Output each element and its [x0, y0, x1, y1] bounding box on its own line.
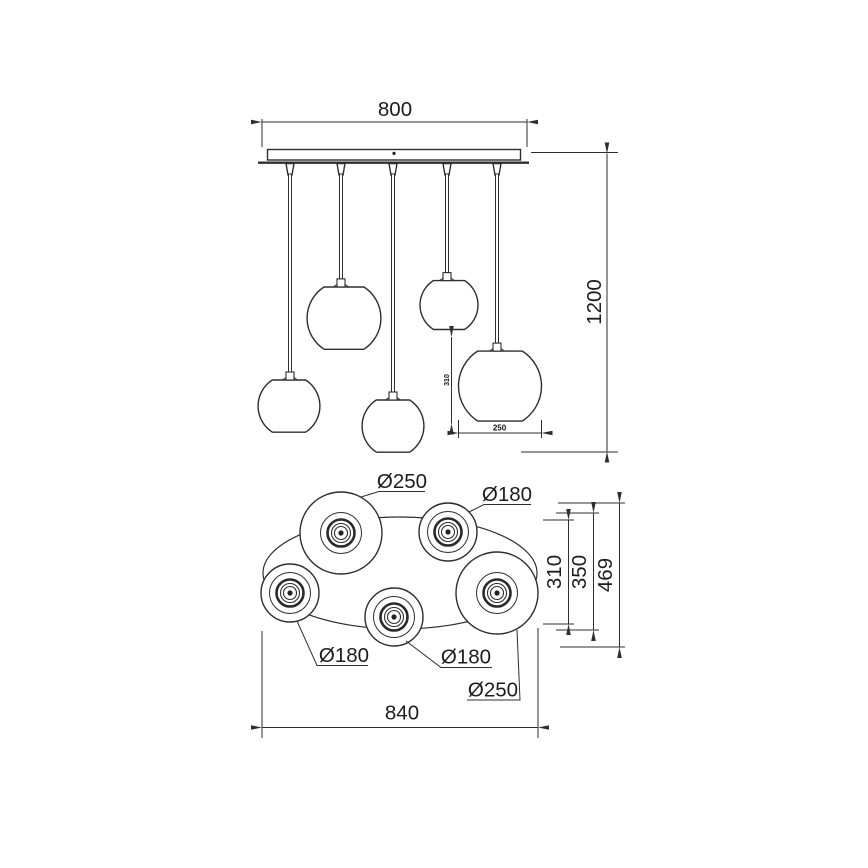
- cord-connector-2: [337, 164, 345, 176]
- plan-dim-bottom-center-shade: Ø180: [441, 646, 491, 669]
- glass-shade-2: [307, 287, 381, 349]
- plan-view: Ø250 Ø180 Ø180 Ø180 Ø250: [261, 470, 625, 738]
- plan-width-dim-label: 840: [385, 702, 419, 725]
- plan-shade-right: [456, 552, 538, 634]
- glass-shade-5: [458, 351, 541, 421]
- plan-shade-top-left: [300, 492, 382, 574]
- suspension-cord-4: [446, 174, 449, 273]
- canopy-width-dimension: 800: [262, 98, 527, 147]
- suspension-cord-1: [289, 174, 292, 372]
- label-bottom-center-shade: Ø180: [406, 641, 492, 669]
- suspension-cord-2: [340, 174, 343, 279]
- plan-depth-dimensions: 310 350 469: [543, 503, 625, 647]
- lamp-center-dot: [391, 614, 396, 619]
- cord-connector-4: [443, 164, 451, 176]
- suspension-cord-5: [496, 174, 499, 343]
- shade-diameter-dim-label: 250: [493, 424, 507, 433]
- plan-dim-top-right-shade: Ø180: [482, 483, 532, 506]
- label-top-left-shade: Ø250: [361, 470, 427, 497]
- plan-shade-left: [261, 564, 319, 622]
- plan-shade-top-right: [419, 503, 477, 561]
- label-top-right-shade: Ø180: [469, 483, 532, 512]
- cord-connectors: [286, 164, 501, 176]
- shade-1-ferrule: [286, 372, 294, 380]
- glass-shade-1: [258, 380, 320, 432]
- right-shade-diameter-dimension: 250: [459, 420, 542, 438]
- pendant-lamp-dimension-drawing: 800: [0, 0, 868, 868]
- elevation-view: 800: [258, 98, 618, 452]
- suspension-cord-3: [392, 174, 395, 392]
- plan-dim-right-shade: Ø250: [468, 679, 518, 702]
- lamp-center-dot: [445, 529, 450, 534]
- lamp-center-dot: [338, 530, 343, 535]
- shade-2-ferrule: [337, 279, 345, 287]
- glass-shade-3: [362, 400, 424, 452]
- lamp-center-dot: [494, 590, 499, 595]
- shade-4-ferrule: [443, 273, 451, 281]
- plan-depth-dim-469: 469: [594, 558, 617, 592]
- cord-connector-3: [389, 164, 397, 176]
- right-shade-height-dimension: 310: [444, 337, 452, 424]
- canopy-center-mark: [392, 152, 395, 155]
- plan-depth-dim-310: 310: [543, 555, 566, 589]
- technical-drawing-page: 800: [0, 0, 868, 868]
- glass-shade-4: [420, 281, 478, 330]
- plan-shade-bottom-center: [365, 588, 423, 646]
- ceiling-canopy: [258, 150, 529, 163]
- plan-dim-top-left-shade: Ø250: [377, 470, 427, 493]
- shade-5-ferrule: [493, 343, 501, 351]
- shade-3-ferrule: [389, 392, 397, 400]
- canopy-width-dim-label: 800: [378, 98, 412, 121]
- cord-connector-1: [286, 164, 294, 176]
- lamp-center-dot: [287, 590, 292, 595]
- label-left-shade: Ø180: [297, 621, 369, 667]
- plan-dim-left-shade: Ø180: [319, 644, 369, 667]
- shade-height-dim-label: 310: [444, 374, 451, 386]
- plan-depth-dim-350: 350: [568, 555, 591, 589]
- overall-height-dim-label: 1200: [583, 279, 606, 325]
- cord-connector-5: [493, 164, 501, 176]
